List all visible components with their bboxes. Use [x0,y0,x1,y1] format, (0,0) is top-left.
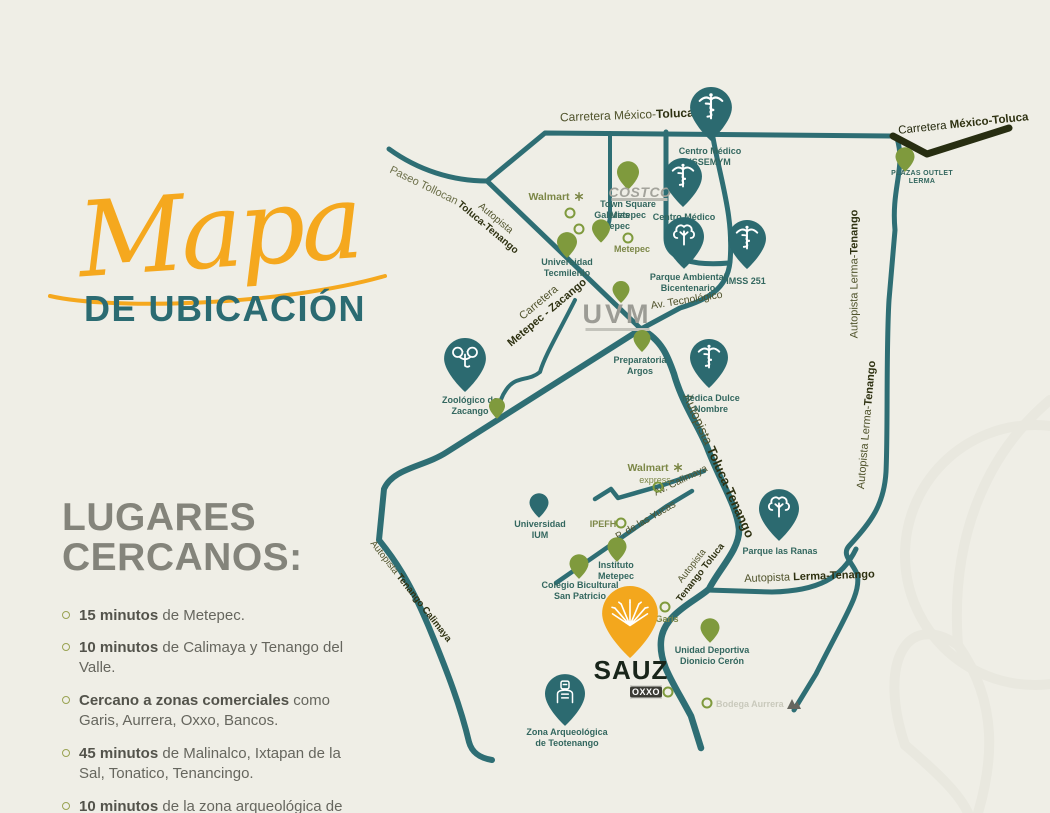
label-garis: Garis [655,614,678,625]
pin-parque-las-ranas [759,489,799,541]
sauz-wordmark: SAUZ [594,655,669,686]
pin-sauz [602,586,658,658]
list-item: 10 minutos de Calimaya y Tenango del Val… [62,638,367,678]
label-universidad-tecmilenio: UniversidadTecmilenio [541,257,593,278]
label-instituto-metepec: InstitutoMetepec [598,560,634,581]
bullet-ring-icon [62,696,70,704]
pin-zacango-road [489,398,505,419]
aurrera-mountain-icon [787,698,801,709]
bullet-ring-icon [62,643,70,651]
list-item: 15 minutos de Metepec. [62,606,367,626]
bodega-aurrera-logo: Bodega Aurrera [716,698,801,709]
walmart-spark-icon [574,192,583,201]
label-parque-ambiental: Parque AmbientalBicentenario [650,272,726,293]
location-map-poster: Mapa DE UBICACIÓN LUGARES CERCANOS: 15 m… [0,0,1050,813]
bullet-ring-icon [62,802,70,810]
oxxo-logo: OXXO [630,685,662,699]
poi-ring-metepec [623,233,634,244]
nearby-list: 15 minutos de Metepec. 10 minutos de Cal… [62,606,367,813]
list-item-text: 10 minutos de Calimaya y Tenango del Val… [79,638,367,678]
label-preparatoria-argos: PreparatoriaArgos [613,355,666,376]
label-medica-dulce-nombre: Médica DulceNombre [682,393,740,414]
pin-universidad-ium [530,493,549,518]
road-label-autopista-lerma-tenango-ne: Autopista Lerma-Tenango [849,210,862,339]
walmart-logo: Walmart [529,192,584,204]
poi-ring-oxxo [663,687,674,698]
pin-parque-ambiental [664,217,704,269]
list-item-text: Cercano a zonas comerciales como Garis, … [79,691,367,731]
uvm-logo: UVM [583,305,652,331]
pin-imss-251 [728,220,766,269]
poi-ring-garis [660,602,671,613]
pin-unidad-deportiva [701,618,720,643]
nearby-places-section: LUGARES CERCANOS: 15 minutos de Metepec.… [62,498,367,813]
pin-centro-medico-toluca [664,158,702,207]
pin-zona-arqueologica [545,674,585,726]
bullet-ring-icon [62,611,70,619]
nearby-heading-line1: LUGARES [62,496,256,539]
label-metepec: Metepec [614,244,650,255]
pin-instituto-metepec [608,537,627,562]
label-unidad-deportiva: Unidad DeportivaDionicio Cerón [675,645,750,666]
label-zona-arqueologica: Zona Arqueológicade Teotenango [526,727,607,748]
map-title-subtitle: DE UBICACIÓN [84,288,366,330]
label-universidad-ium: UniversidadIUM [514,519,566,540]
background-watermark [894,400,1050,813]
pin-zoologico-zacango [444,338,486,392]
list-item-text: 15 minutos de Metepec. [79,606,245,626]
label-ipefh: IPEFH [590,519,617,530]
label-imss-251: IMSS 251 [726,276,766,287]
list-item-text: 45 minutos de Malinalco, Ixtapan de la S… [79,744,367,784]
poi-ring-bodega-aurrera [702,698,713,709]
list-item: Cercano a zonas comerciales como Garis, … [62,691,367,731]
pin-medica-dulce-nombre [690,339,728,388]
walmart-spark-icon [673,463,682,472]
pin-centro-medico-issemym [690,87,732,141]
list-item: 10 minutos de la zona arqueológica de Te… [62,797,367,813]
pin-galerias-metepec [592,219,610,243]
list-item-text: 10 minutos de la zona arqueológica de Te… [79,797,367,813]
poi-ring-walmart-express [653,482,664,493]
pin-preparatoria-argos [634,330,651,352]
pin-colegio-bicultural [570,554,589,579]
poi-ring-ipefh [616,518,627,529]
poi-ring-walmart [565,208,576,219]
bullet-ring-icon [62,749,70,757]
nearby-heading-line2: CERCANOS: [62,536,303,579]
road-carretera-metepec-zacango [379,329,641,760]
pin-plazas-outlet-lerma [896,147,915,172]
pin-universidad-tecmilenio [557,232,577,258]
costco-logo: COSTCO [609,188,672,201]
label-plazas-outlet-lerma: PLAZAS OUTLETLERMA [891,170,953,187]
label-parque-las-ranas: Parque las Ranas [742,546,817,557]
nearby-heading: LUGARES CERCANOS: [62,498,367,578]
list-item: 45 minutos de Malinalco, Ixtapan de la S… [62,744,367,784]
road-autopista-lerma-tenango-east [794,138,900,710]
